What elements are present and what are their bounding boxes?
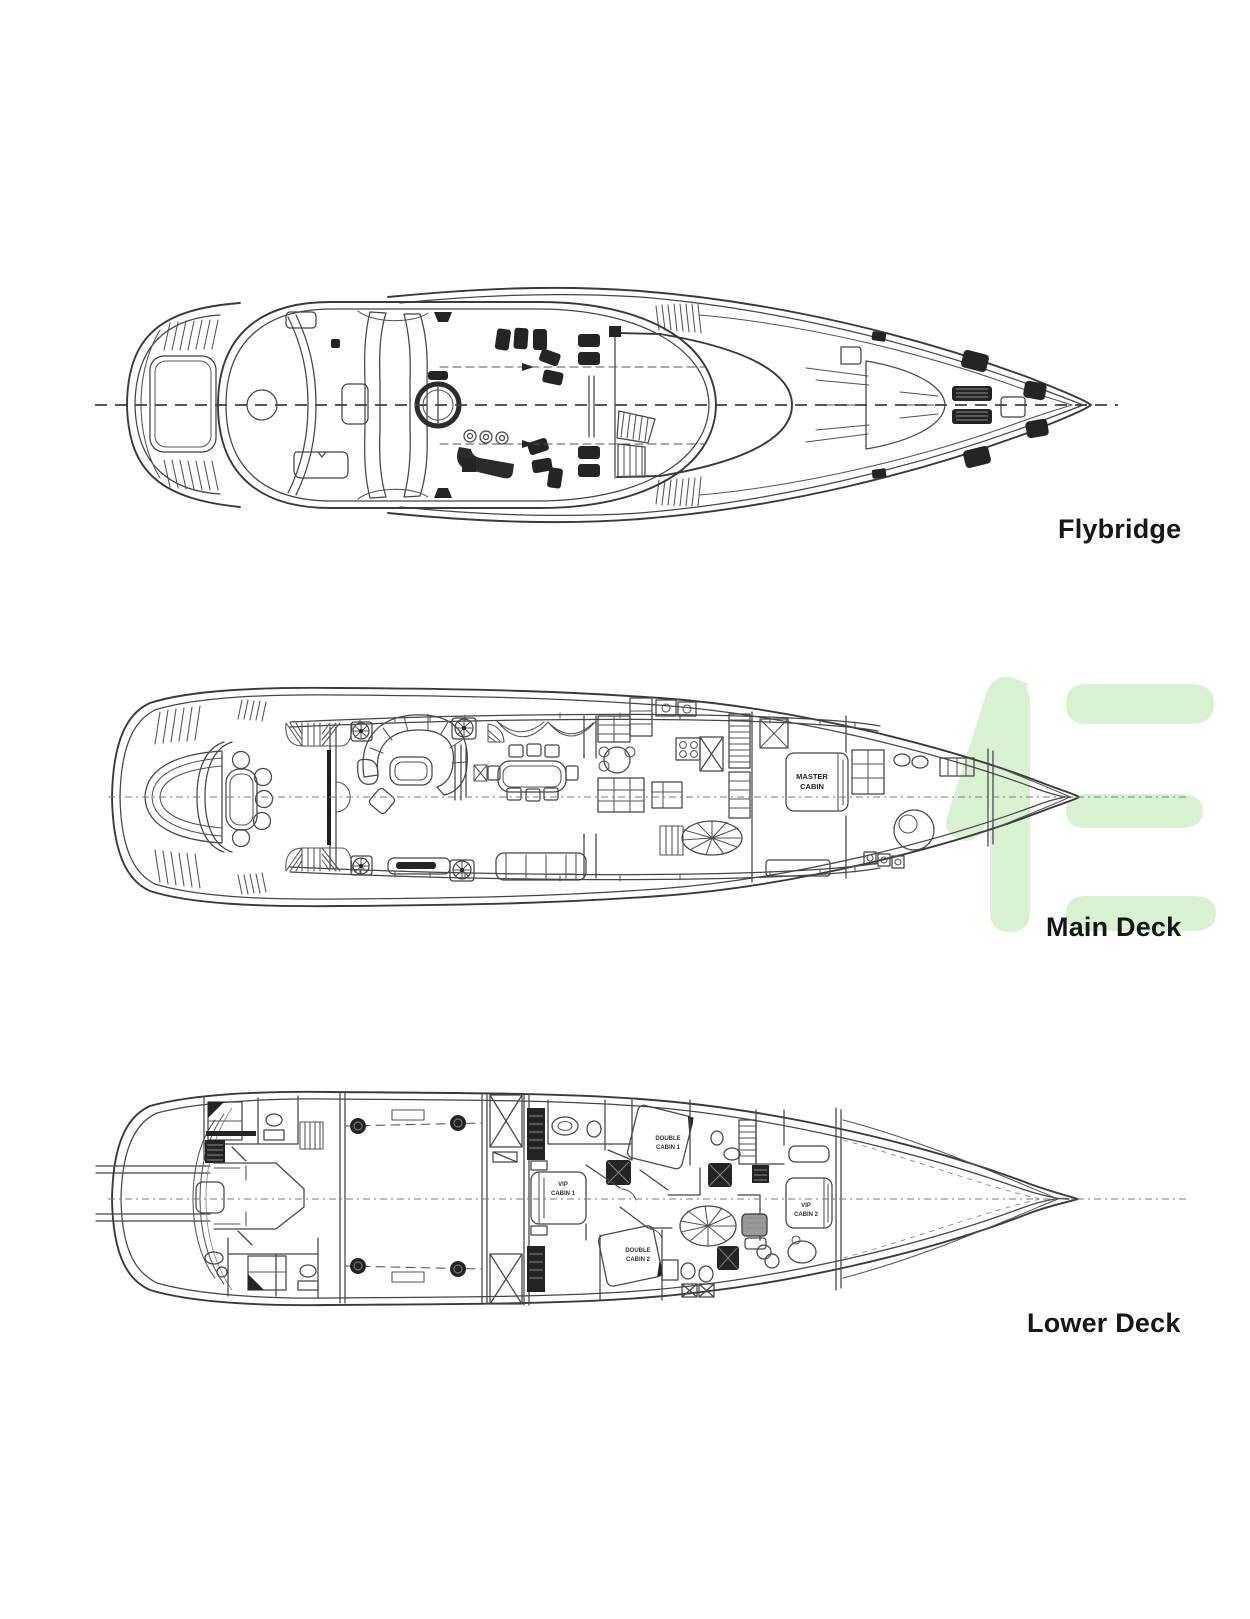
svg-text:CABIN 2: CABIN 2	[794, 1212, 819, 1218]
svg-text:VIP: VIP	[558, 1182, 568, 1188]
svg-text:MASTER: MASTER	[796, 772, 828, 781]
svg-text:DOUBLE: DOUBLE	[655, 1136, 680, 1142]
svg-text:CABIN: CABIN	[800, 782, 824, 791]
svg-text:DOUBLE: DOUBLE	[625, 1248, 650, 1254]
svg-text:VIP: VIP	[801, 1203, 811, 1209]
svg-text:CABIN 2: CABIN 2	[626, 1257, 651, 1263]
svg-text:CABIN 1: CABIN 1	[656, 1145, 681, 1151]
svg-text:CABIN 1: CABIN 1	[551, 1191, 576, 1197]
